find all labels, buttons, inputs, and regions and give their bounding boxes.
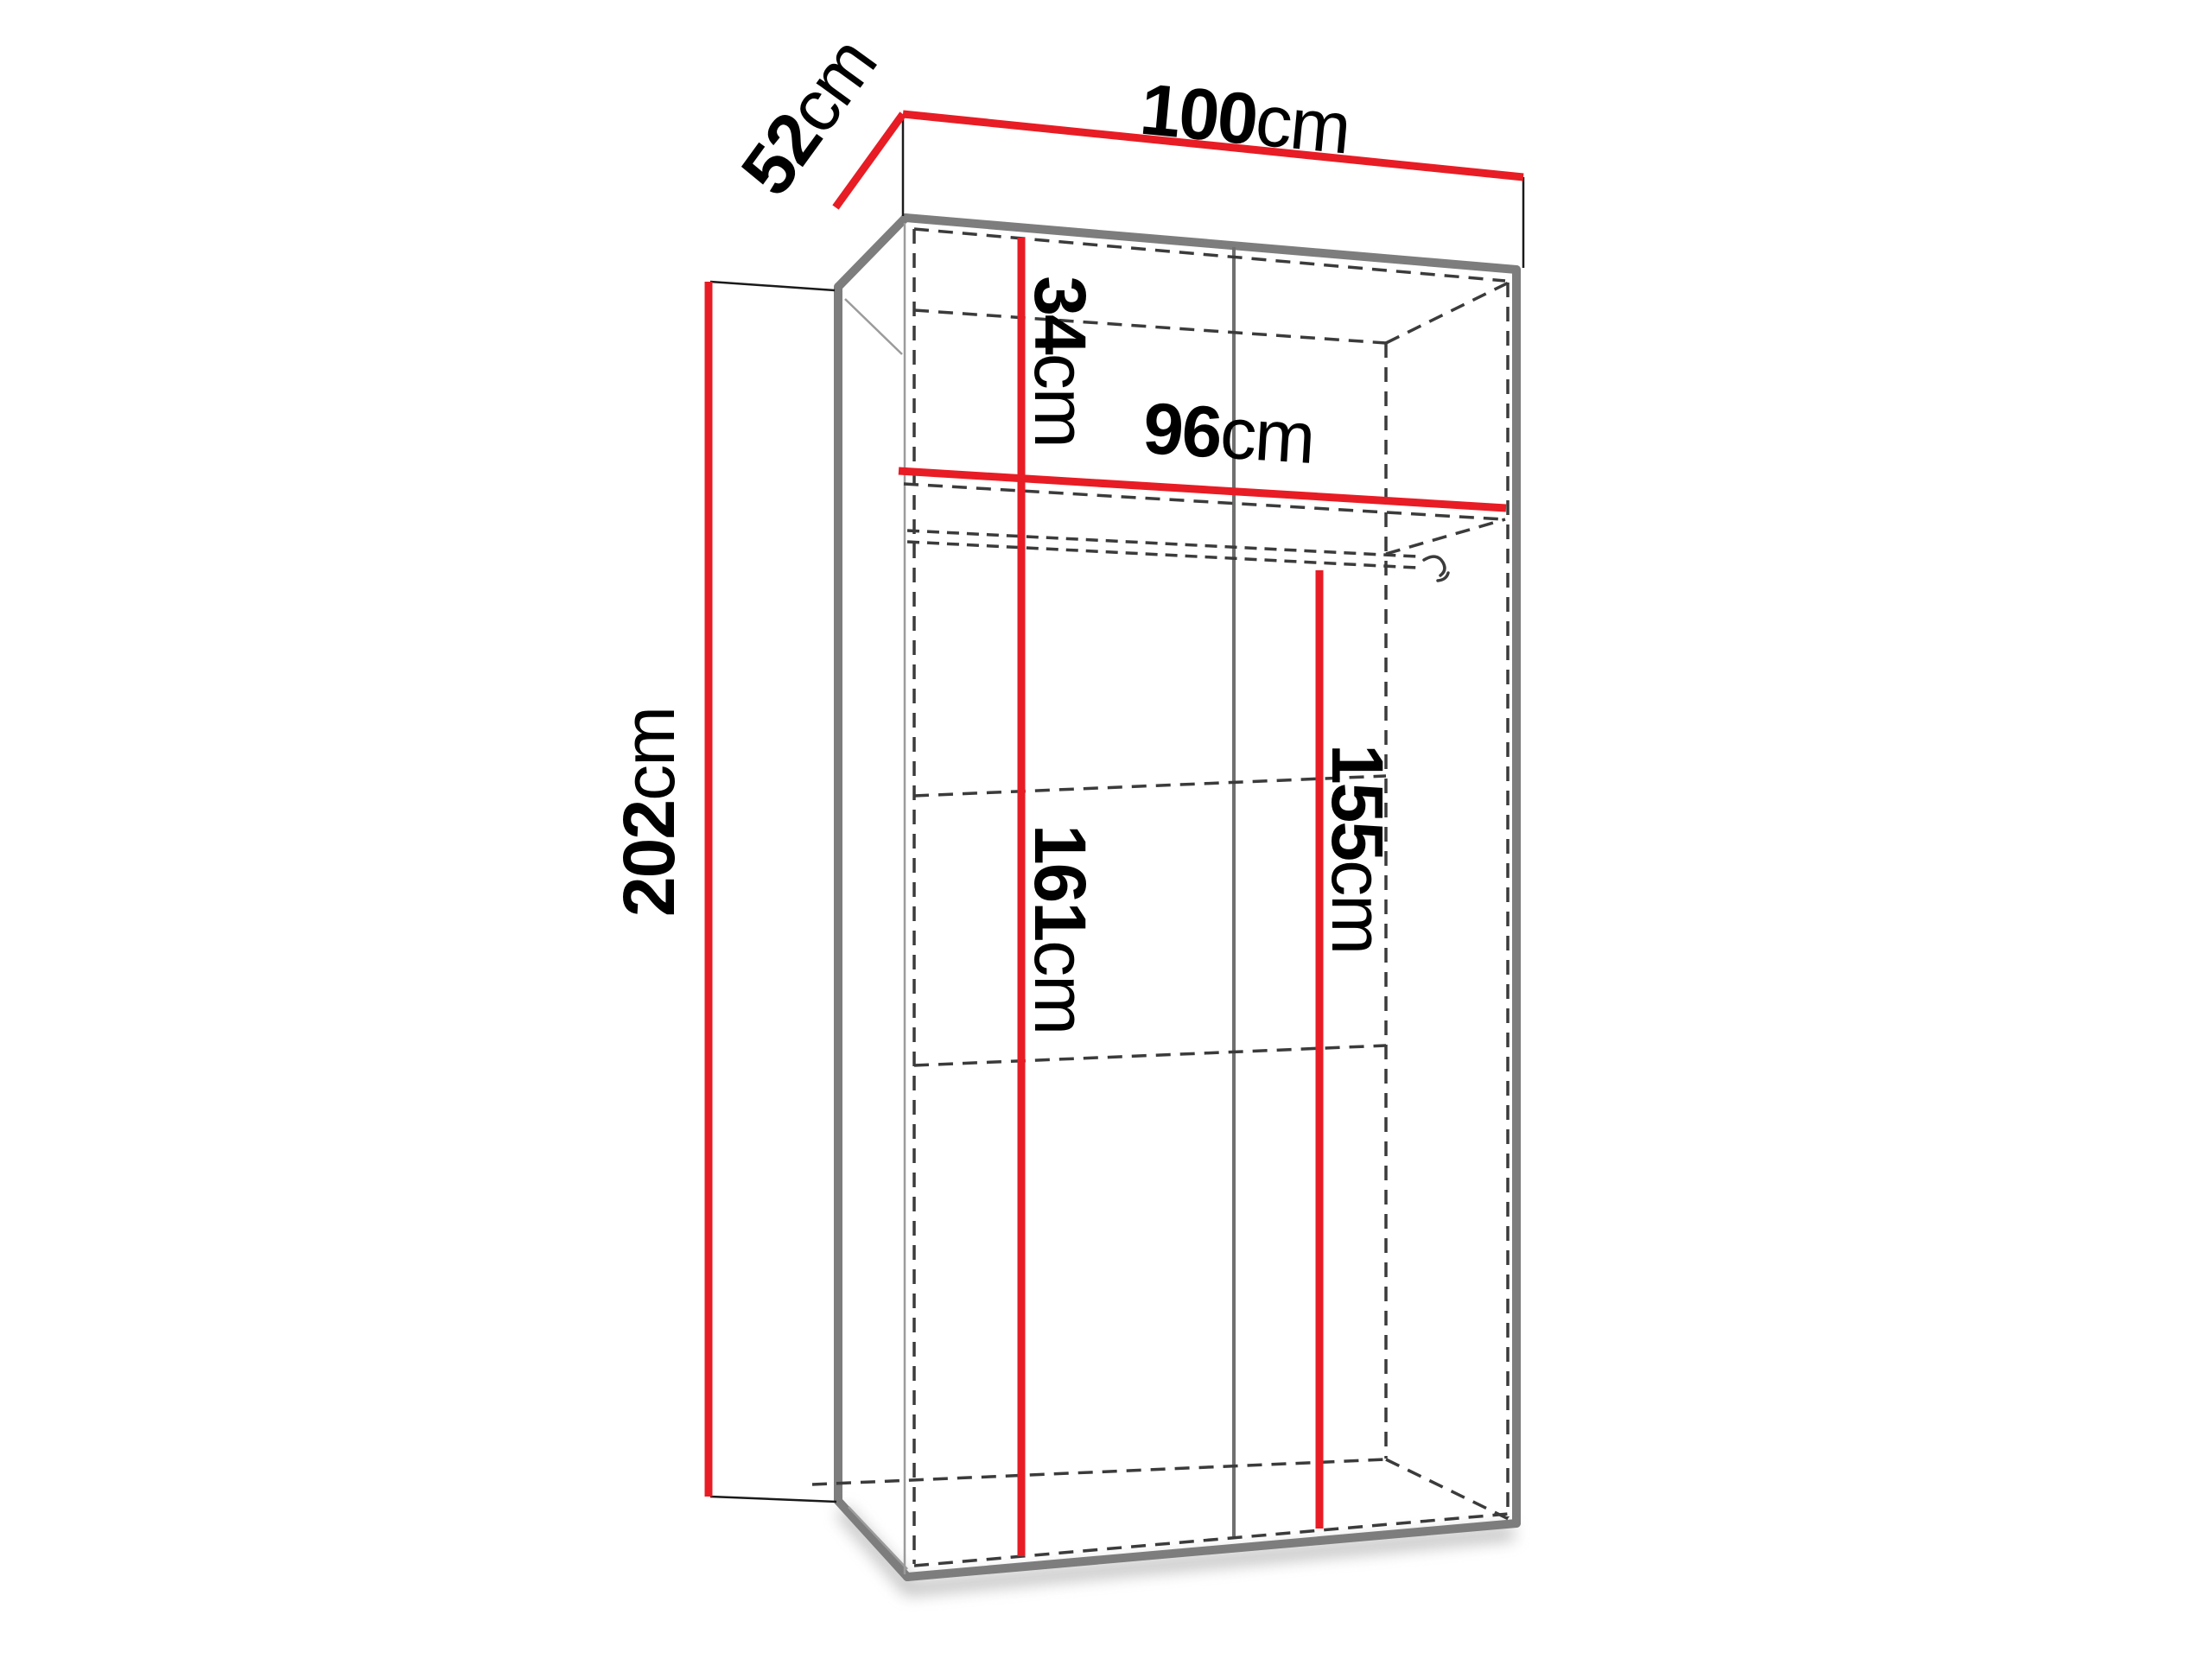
interior-floor-right-depth-dashed-edge (1386, 1459, 1512, 1521)
shelf-dashed-line-2 (914, 1046, 1386, 1065)
witness-line-height-top (710, 282, 835, 290)
interior-top-front-dashed-edge (914, 229, 1505, 281)
interior-back-top-dashed-edge (914, 310, 1386, 343)
dimension-label-left-inner-height: 161cm (1020, 824, 1101, 1033)
witness-line-height-bottom (710, 1497, 836, 1502)
top-left-inner-edge (845, 299, 902, 354)
cabinet-bottom-left-depth-edge (838, 1501, 907, 1577)
dimension-label-top-width: 100cm (1137, 68, 1353, 169)
dimension-label-side-height: 202cm (608, 708, 690, 917)
dimension-label-top-depth: 52cm (725, 23, 891, 209)
interior-floor-back-dashed-edge (812, 1459, 1386, 1484)
diagram-canvas: 100cm 52cm 202cm 34cm 96cm 161cm 155cm (0, 0, 2212, 1659)
cabinet-top-left-depth-edge (838, 218, 906, 287)
interior-top-right-depth-dashed-edge (1386, 283, 1509, 343)
wardrobe-dimension-diagram: 100cm 52cm 202cm 34cm 96cm 161cm 155cm (0, 0, 2212, 1659)
dimension-label-inner-width: 96cm (1141, 387, 1316, 479)
cabinet-front-bottom-edge (907, 1523, 1516, 1577)
top-shelf-depth-dashed-edge (1386, 519, 1505, 554)
hanging-rail-end-bracket (1424, 556, 1448, 581)
shelf-dashed-line-1 (914, 776, 1386, 796)
hanging-rail-bottom-dashed-line (907, 542, 1417, 568)
dimension-label-upper-compartment-height: 34cm (1020, 276, 1101, 446)
dimension-label-right-inner-height: 155cm (1317, 744, 1398, 953)
hanging-rail-top-dashed-line (907, 531, 1417, 556)
cabinet-front-top-edge (906, 218, 1516, 270)
